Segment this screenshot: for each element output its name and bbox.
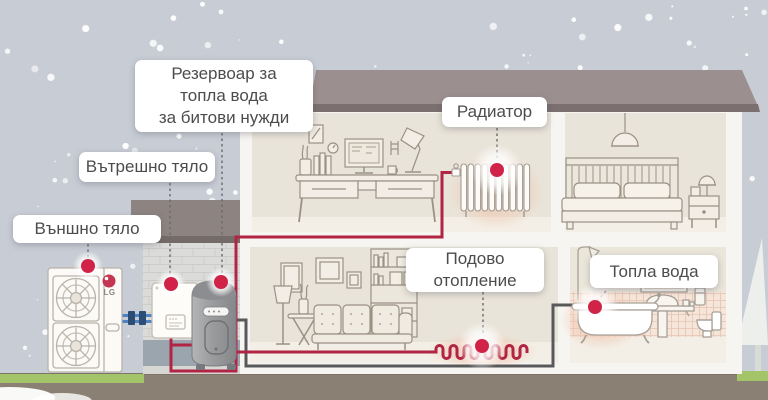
towel xyxy=(695,288,705,305)
heating-system-diagram: Резервоар за топла вода за битови нужди … xyxy=(0,0,768,400)
hot-water-hotspot[interactable] xyxy=(588,300,602,314)
fan-grille-top xyxy=(57,279,96,318)
radiator-label: Радиатор xyxy=(442,97,547,127)
reservoir-label-line1: Резервоар за xyxy=(171,63,276,85)
fan-grille-bottom xyxy=(57,327,96,366)
floor-heating-hotspot[interactable] xyxy=(475,339,489,353)
reservoir-label-line2: топла вода xyxy=(180,85,268,107)
floor-heating-label: Подово отопление xyxy=(406,248,544,292)
lg-logo-icon xyxy=(103,275,116,288)
hot-water-label: Топла вода xyxy=(590,255,718,288)
toilet xyxy=(712,312,721,330)
lg-brand-text: LG xyxy=(101,288,118,297)
radiator-hotspot[interactable] xyxy=(490,163,504,177)
indoor-unit-hotspot[interactable] xyxy=(164,277,178,291)
outdoor-unit-hotspot[interactable] xyxy=(81,259,95,273)
reservoir-label: Резервоар за топла вода за битови нужди xyxy=(135,60,313,132)
outdoor-unit xyxy=(48,268,122,372)
water-tank-hotspot[interactable] xyxy=(214,275,228,289)
ground xyxy=(0,371,768,400)
indoor-unit-label: Вътрешно тяло xyxy=(79,152,215,182)
outdoor-unit-label: Външно тяло xyxy=(13,215,161,243)
reservoir-label-line3: за битови нужди xyxy=(159,107,289,129)
scene-graphic xyxy=(0,0,768,400)
floor-heating-label-line2: отопление xyxy=(433,270,516,292)
floor-heating-label-line1: Подово xyxy=(446,248,505,270)
